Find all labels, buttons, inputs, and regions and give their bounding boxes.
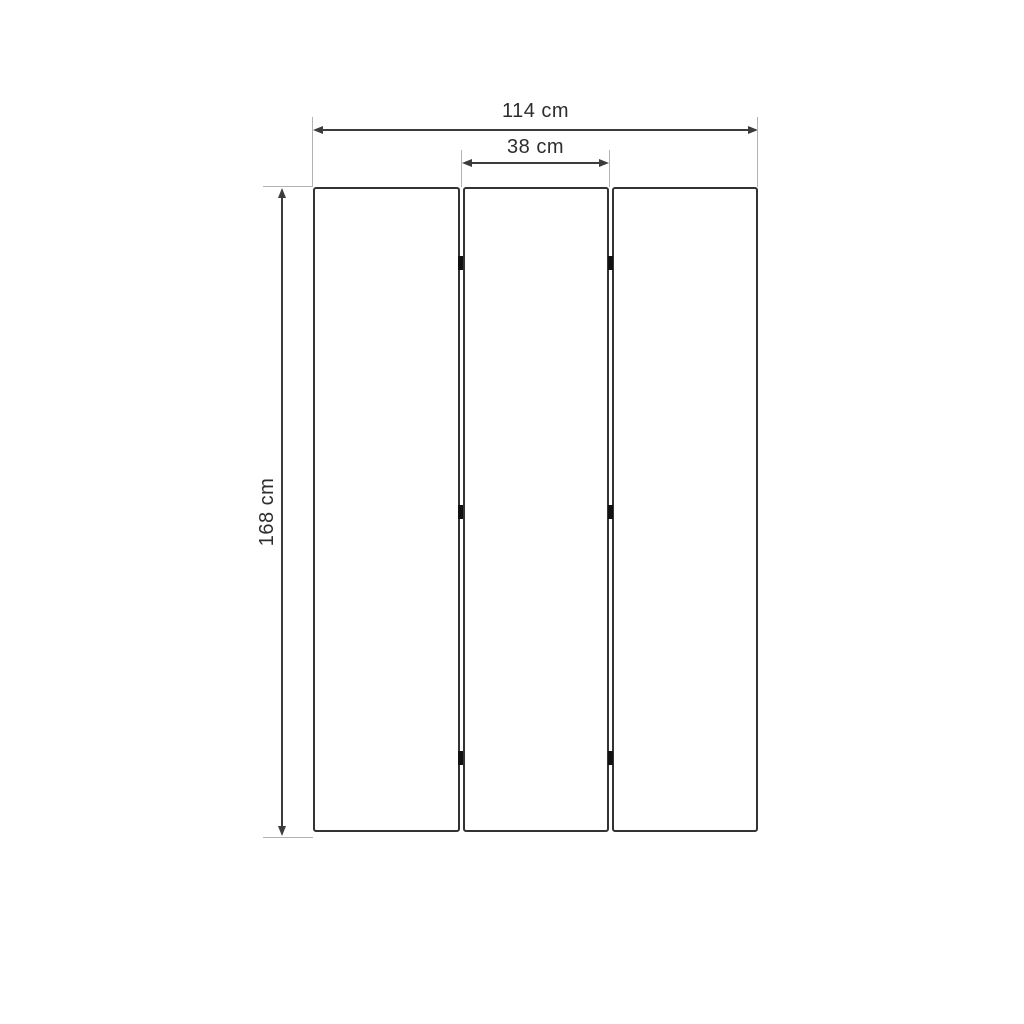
hinge-mark — [458, 505, 463, 519]
panel-right — [612, 187, 758, 832]
extension-line-left — [312, 117, 313, 187]
hinge-mark — [608, 505, 613, 519]
hinge-mark — [458, 751, 463, 765]
height-label: 168 cm — [255, 462, 279, 562]
folding-screen-diagram: 114 cm 38 cm 168 cm — [0, 0, 1024, 1024]
extension-line-left — [461, 150, 462, 187]
extension-line-bottom — [263, 837, 313, 838]
arrowhead-down-icon — [278, 826, 286, 836]
total-width-label: 114 cm — [313, 99, 758, 123]
panel-width-dimension-line — [471, 162, 600, 164]
extension-line-right — [757, 117, 758, 187]
hinge-mark — [458, 256, 463, 270]
extension-line-right — [609, 150, 610, 187]
arrowhead-right-icon — [599, 159, 609, 167]
panel-middle — [463, 187, 609, 832]
hinge-mark — [608, 751, 613, 765]
panel-width-label: 38 cm — [462, 135, 609, 159]
extension-line-top — [263, 186, 313, 187]
total-width-dimension-line — [322, 129, 750, 131]
height-dimension-line — [281, 197, 283, 827]
hinge-mark — [608, 256, 613, 270]
panel-left — [313, 187, 460, 832]
